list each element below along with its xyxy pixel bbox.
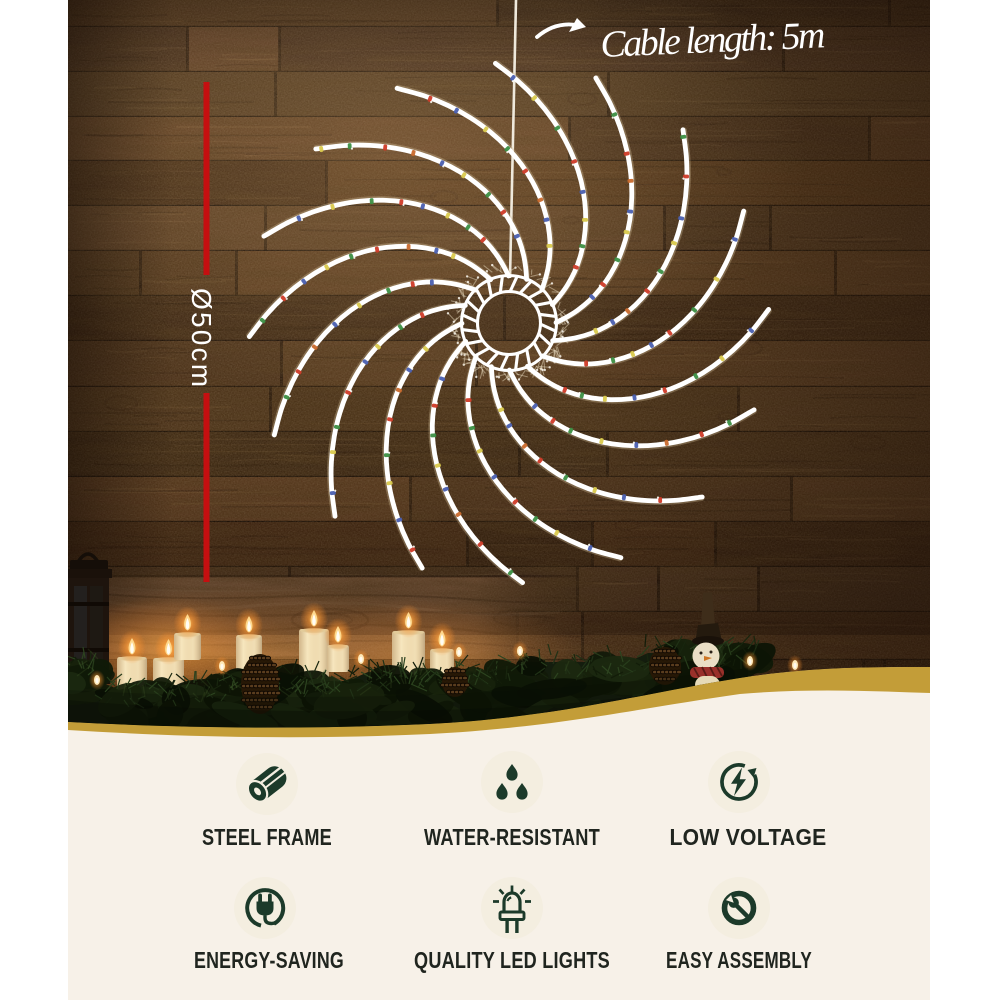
svg-text:ENERGY-SAVING: ENERGY-SAVING	[194, 947, 344, 973]
svg-text:WATER-RESISTANT: WATER-RESISTANT	[424, 824, 600, 850]
svg-text:LOW VOLTAGE: LOW VOLTAGE	[670, 824, 827, 850]
svg-text:QUALITY LED LIGHTS: QUALITY LED LIGHTS	[414, 947, 610, 973]
svg-text:Ø50cm: Ø50cm	[186, 288, 217, 389]
svg-text:EASY ASSEMBLY: EASY ASSEMBLY	[666, 947, 812, 973]
svg-text:STEEL FRAME: STEEL FRAME	[202, 824, 332, 850]
